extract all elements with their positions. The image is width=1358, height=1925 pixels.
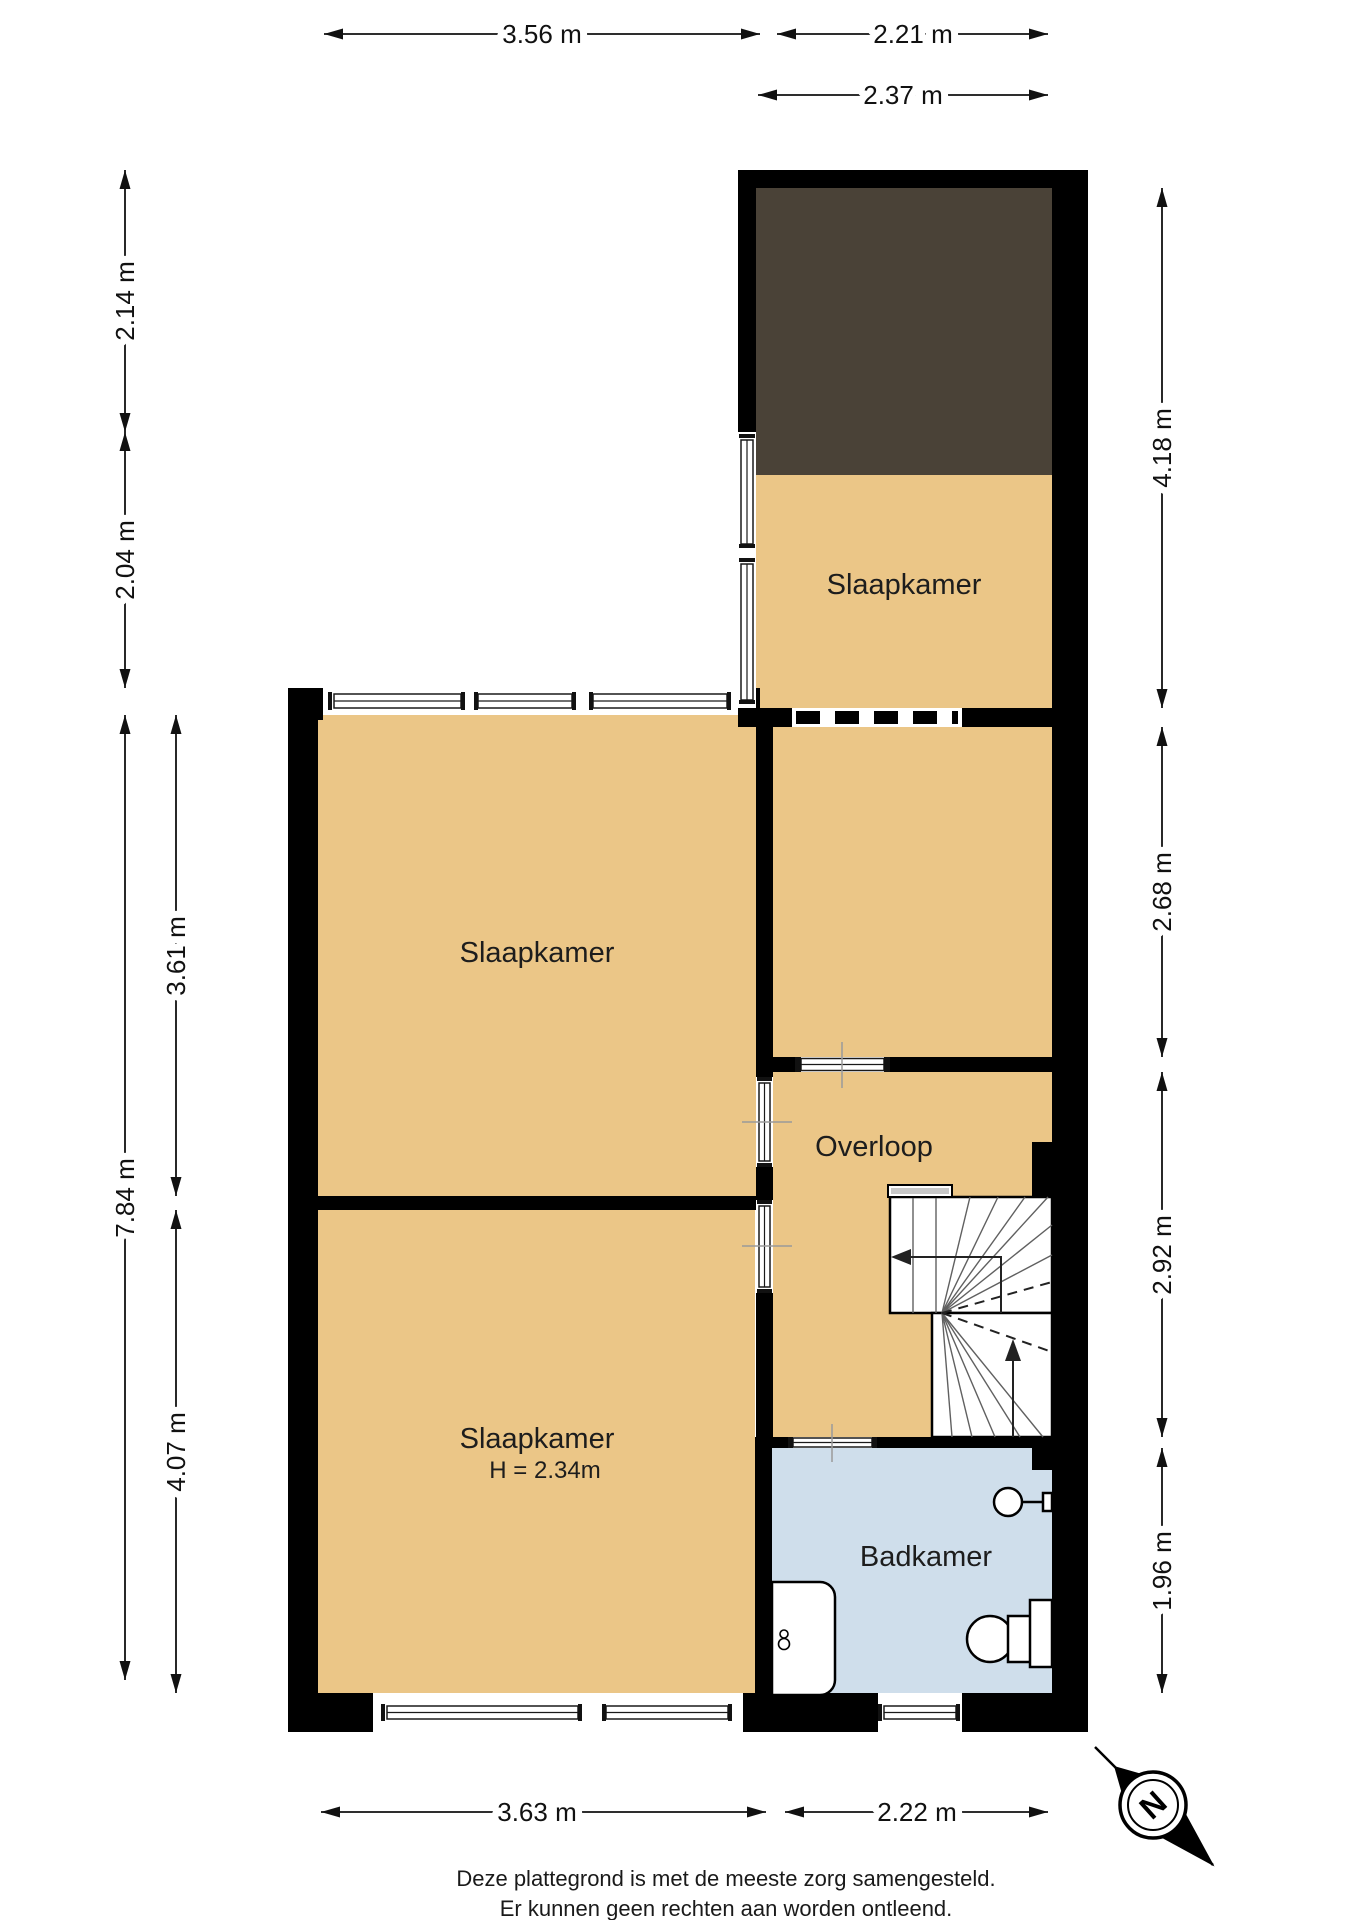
svg-text:2.04 m: 2.04 m [110,520,140,600]
svg-text:4.07 m: 4.07 m [161,1412,191,1492]
sink-icon [772,1582,835,1695]
bedroom-height-note: H = 2.34m [489,1457,600,1484]
window-top-band [323,688,738,715]
roof-void-area [756,188,1052,475]
landing-label: Overloop [815,1131,933,1163]
window-bathroom-bottom [878,1693,962,1732]
svg-text:2.68 m: 2.68 m [1147,852,1177,932]
svg-text:1.96 m: 1.96 m [1147,1531,1177,1611]
footer-disclaimer-line1: Deze plattegrond is met de meeste zorg s… [456,1866,995,1891]
floorplan-canvas: Slaapkamer Slaapkamer Slaapkamer H = 2.3… [0,0,1358,1920]
footer-disclaimer-line2: Er kunnen geen rechten aan worden ontlee… [500,1896,953,1920]
svg-text:3.56 m: 3.56 m [502,19,582,49]
bedroom-bottom-left-label: Slaapkamer [460,1423,615,1455]
bathroom-label: Badkamer [860,1541,993,1573]
bedroom-middle-left-label: Slaapkamer [460,937,615,969]
svg-text:2.21 m: 2.21 m [873,19,953,49]
svg-text:7.84 m: 7.84 m [110,1158,140,1238]
svg-text:3.61 m: 3.61 m [161,916,191,996]
window-bottom-band [373,1693,743,1732]
svg-text:2.37 m: 2.37 m [863,80,943,110]
svg-text:2.22 m: 2.22 m [877,1797,957,1827]
svg-text:2.92 m: 2.92 m [1147,1215,1177,1295]
stair-landing-rail [888,1185,952,1197]
floorplan-page: Slaapkamer Slaapkamer Slaapkamer H = 2.3… [0,0,1358,1920]
stair-upper-flight [890,1197,1052,1313]
bedroom-top-right-label: Slaapkamer [827,569,982,601]
svg-text:3.63 m: 3.63 m [497,1797,577,1827]
window-roof-left-wall [738,432,756,708]
svg-text:4.18 m: 4.18 m [1147,408,1177,488]
svg-text:2.14 m: 2.14 m [110,261,140,341]
middle-right-room-area [756,727,1052,1057]
dashed-wall-opening [792,708,962,727]
